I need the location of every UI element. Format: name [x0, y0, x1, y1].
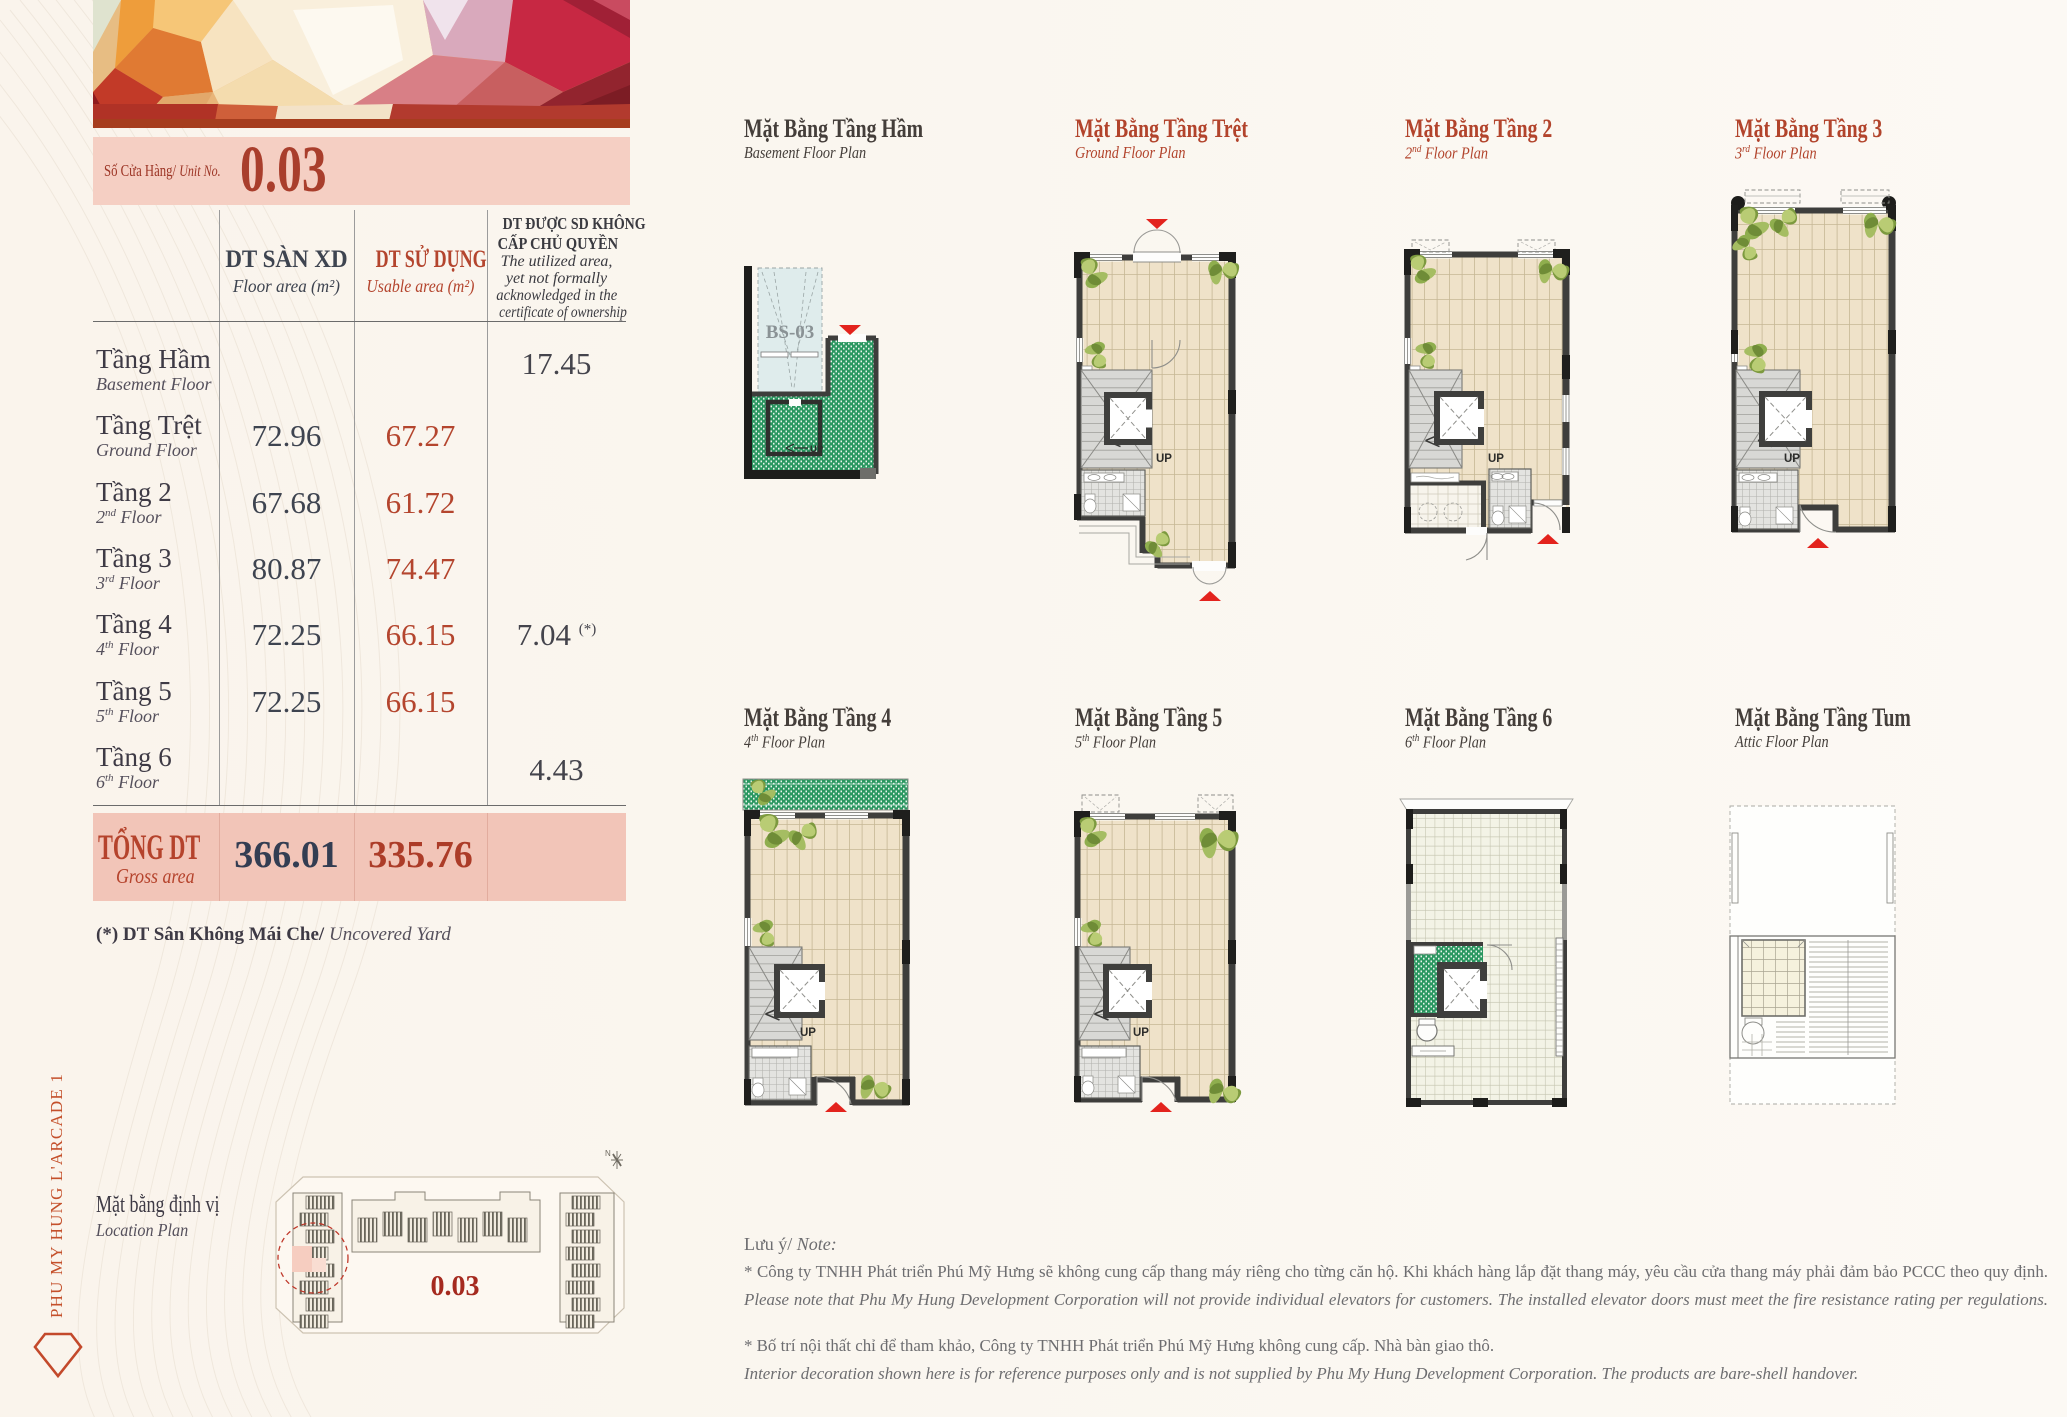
svg-text:UP: UP: [1133, 1027, 1149, 1039]
svg-text:UP: UP: [1488, 453, 1504, 465]
svg-text:UP: UP: [1784, 453, 1800, 465]
svg-text:N: N: [605, 1149, 611, 1158]
svg-text:UP: UP: [1156, 453, 1172, 465]
svg-text:0.03: 0.03: [431, 1271, 480, 1302]
svg-text:UP: UP: [810, 444, 824, 455]
svg-text:BS-03: BS-03: [766, 322, 815, 343]
svg-text:UP: UP: [800, 1027, 816, 1039]
